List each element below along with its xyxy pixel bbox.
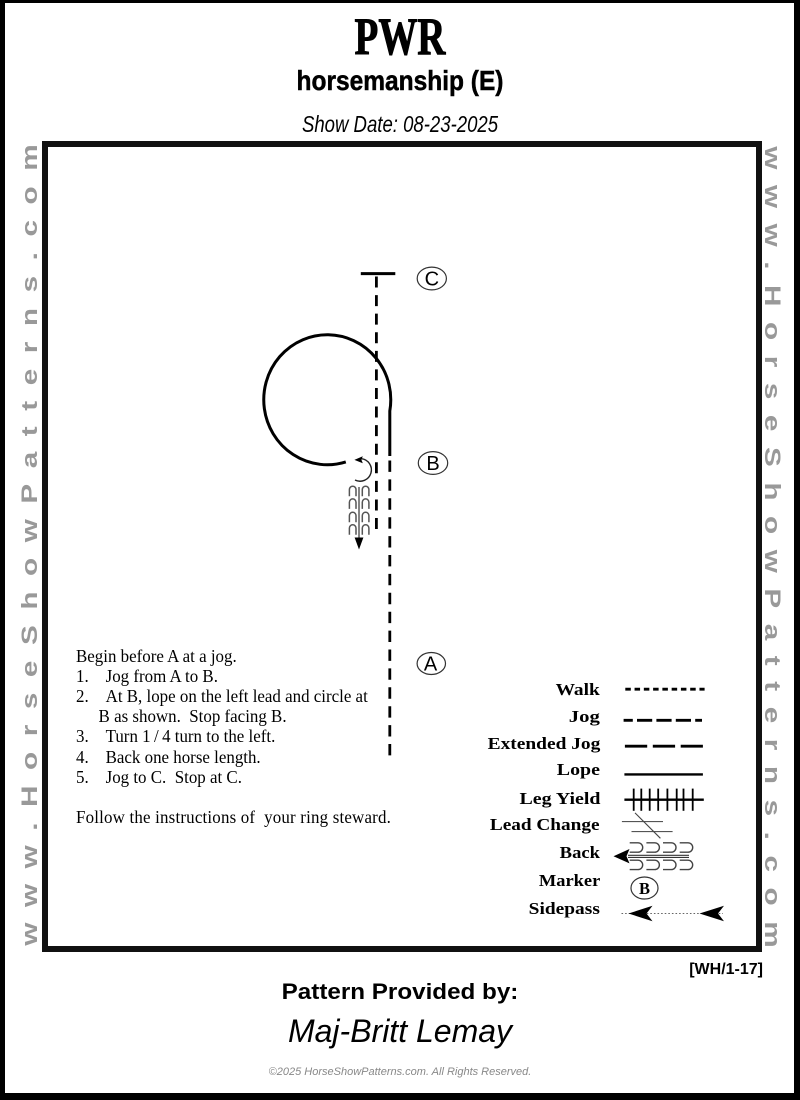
svg-text:A: A (424, 654, 438, 676)
svg-text:B: B (639, 879, 650, 898)
svg-text:B: B (426, 453, 439, 475)
svg-text:C: C (425, 269, 439, 291)
